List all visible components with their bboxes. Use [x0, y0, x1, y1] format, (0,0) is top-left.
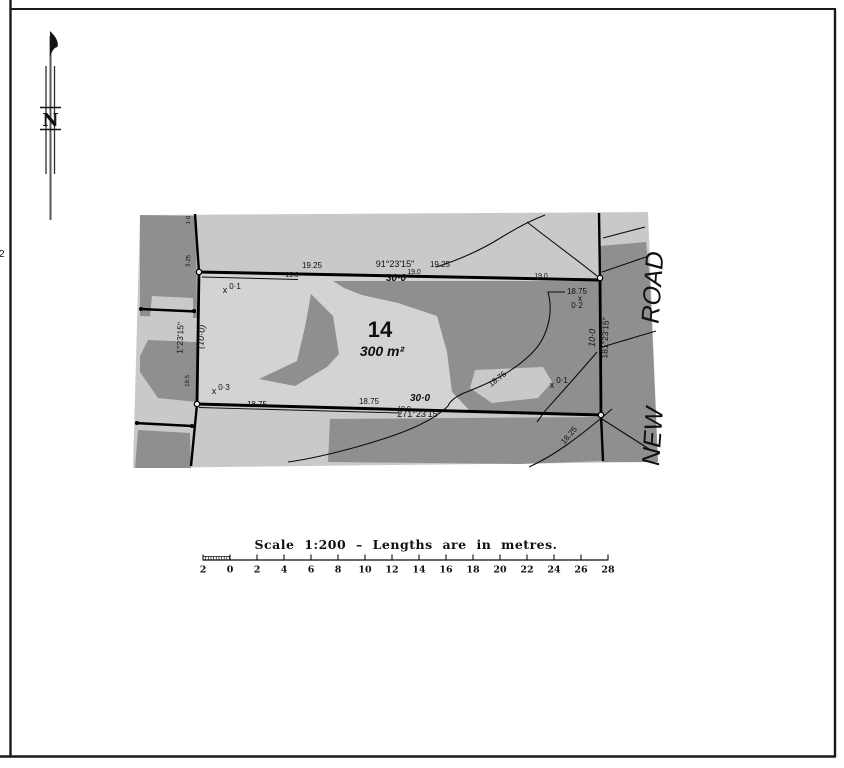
distance-west: (10·0) [195, 324, 207, 349]
north-arrow-flag-icon [50, 31, 58, 57]
contour-label-19-25-b: 19.25 [430, 260, 451, 269]
scale-tick-label: 8 [335, 565, 342, 576]
bearing-east: 181°23'15" [599, 317, 610, 358]
scale-tick-label: 16 [439, 565, 453, 576]
spot-level-0-2: 0·2 [571, 301, 583, 310]
contour-label-19-25-a: 19.25 [302, 261, 323, 270]
lot-number: 14 [368, 317, 393, 342]
north-letter: N [42, 110, 58, 131]
scale-tick-label: 28 [601, 565, 615, 576]
distance-label-19-0-c: 19.0 [534, 273, 548, 280]
extension-distance-b: 3·25 [186, 254, 192, 267]
distance-label-18-75-a: 18.75 [247, 400, 268, 409]
scale-tick-label: 2 [200, 565, 207, 576]
scale-tick-label: 10 [358, 565, 372, 576]
scale-tick-label: 0 [227, 565, 234, 576]
edge-clipped-text: 2 [0, 249, 5, 260]
spot-level-0-3: 0·3 [218, 383, 230, 392]
distance-north: 30·0 [386, 273, 406, 284]
lot-area: 300 m² [360, 343, 405, 359]
survey-plan-page: 2 N [0, 0, 844, 768]
scale-tick-label: 22 [520, 565, 533, 576]
road-name-new: NEW [637, 404, 669, 467]
scale-tick-label: 6 [308, 565, 315, 576]
spot-level-0-1-tl: 0·1 [229, 282, 241, 291]
scale-tick-label: 24 [547, 565, 561, 576]
bearing-south: 271°23'15" [397, 409, 441, 419]
distance-label-19-0-a: 19.0 [285, 272, 299, 279]
scale-tick-label: 14 [412, 565, 426, 576]
spot-mark-bl: x [212, 386, 217, 396]
scale-tick-label: 12 [385, 565, 398, 576]
distance-east: 10·0 [587, 329, 598, 347]
scale-tick-label: 26 [574, 565, 588, 576]
distance-label-19-0-b: 19.0 [407, 269, 421, 276]
scale-bar: Scale 1:200 – Lengths are in metres. 202… [200, 537, 615, 576]
road-name-road: ROAD [637, 250, 670, 324]
spot-level-0-1-r: 0·1 [556, 376, 568, 385]
contour-label-18-5: 18.5 [185, 374, 191, 387]
scale-tick-label: 4 [281, 565, 288, 576]
spot-mark-tl: x [223, 285, 228, 295]
scale-tick-label: 20 [493, 565, 507, 576]
scale-title: Scale 1:200 – Lengths are in metres. [254, 537, 557, 552]
spot-mark-r: x [550, 380, 555, 390]
north-arrow: N [40, 31, 61, 220]
extension-distance-a: 1·0 [186, 215, 192, 225]
bearing-west: 1°23'15" [174, 322, 185, 354]
scale-tick-label: 18 [466, 565, 480, 576]
survey-map: 19.2519.091°23'15"19.2530·019.019.0x0·11… [133, 212, 670, 468]
distance-label-18-75-b: 18.75 [359, 397, 380, 406]
scale-ticks: 20246810121416182022242628 [200, 555, 615, 576]
plan-canvas: 2 N [0, 0, 844, 768]
distance-south: 30·0 [410, 393, 430, 404]
scale-tick-label: 2 [254, 565, 261, 576]
bearing-north: 91°23'15" [376, 259, 415, 269]
